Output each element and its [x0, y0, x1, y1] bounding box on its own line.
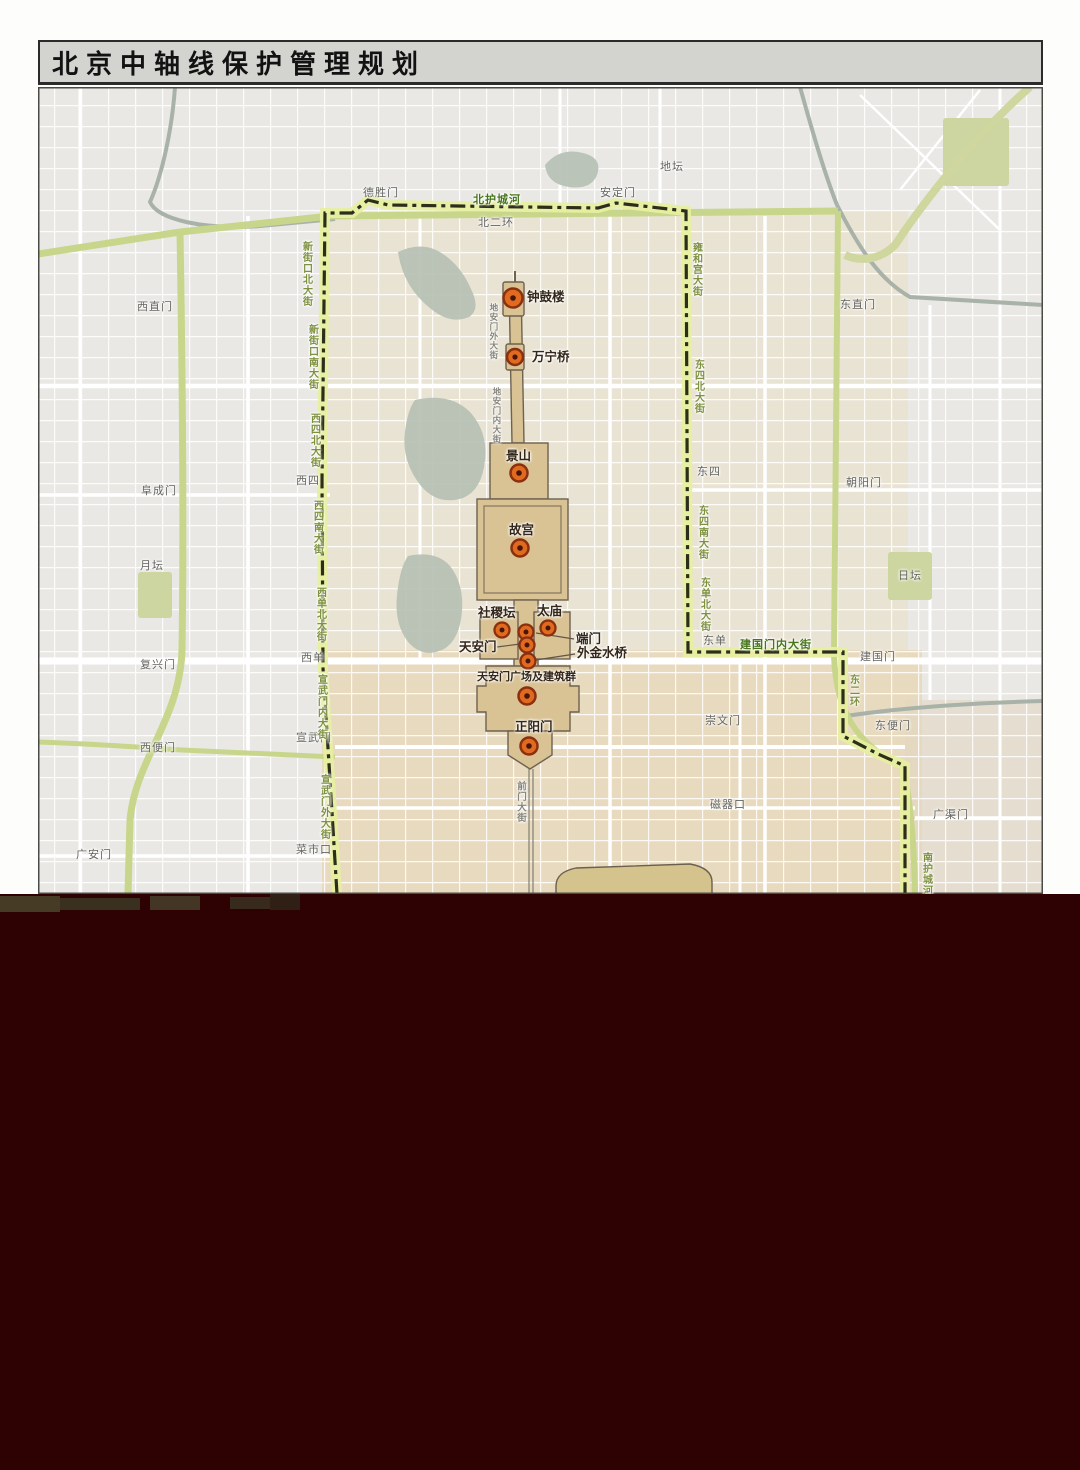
- site-label: 外金水桥: [577, 647, 627, 660]
- street-label: 西单北大街: [314, 587, 325, 642]
- site-label: 景山: [506, 450, 531, 463]
- street-label: 新街口南大街: [306, 324, 317, 390]
- street-label: 地安门内大街: [492, 387, 501, 444]
- street-label: 宣武门外大街: [318, 774, 329, 840]
- marker-tiananmen: [520, 638, 535, 653]
- gate-label: 广渠门: [933, 810, 969, 822]
- marker-zhonggulou: [504, 289, 523, 308]
- gate-label: 德胜门: [363, 188, 399, 200]
- site-label: 端门: [576, 633, 601, 646]
- gate-label: 广安门: [76, 850, 112, 862]
- compression-artifact: [0, 896, 60, 912]
- gate-label: 西四: [296, 476, 320, 488]
- gate-label: 地坛: [660, 162, 684, 174]
- gate-label: 西便门: [140, 743, 176, 755]
- street-label: 东四北大街: [692, 359, 703, 414]
- street-label: 东单北大街: [698, 577, 709, 632]
- map-layers: [38, 87, 1043, 894]
- gate-label: 朝阳门: [846, 478, 882, 490]
- site-label: 故宫: [509, 524, 534, 537]
- river-label: 北护城河: [473, 195, 521, 207]
- site-label: 太庙: [537, 605, 562, 618]
- gate-label: 安定门: [600, 188, 636, 200]
- site-label: 社稷坛: [478, 607, 516, 620]
- marker-zhengyangmen: [521, 738, 538, 755]
- site-label: 万宁桥: [532, 351, 570, 364]
- marker-wanningqiao: [507, 349, 523, 365]
- gate-label: 磁器口: [710, 800, 746, 812]
- street-label: 新街口北大街: [300, 241, 311, 307]
- street-label: 西四北大街: [308, 413, 319, 468]
- marker-waijinshuiqiao: [521, 654, 536, 669]
- street-label: 建国门内大街: [740, 640, 812, 652]
- page-title: 北京中轴线保护管理规划: [40, 44, 426, 81]
- gate-label: 菜市口: [296, 845, 332, 857]
- gate-label: 阜成门: [141, 486, 177, 498]
- compression-artifact: [230, 897, 270, 909]
- site-label: 天安门广场及建筑群: [477, 672, 576, 684]
- street-label: 雍和宫大街: [690, 242, 701, 297]
- ring-road-label: 北二环: [478, 218, 514, 230]
- ring-road-label: 东二环: [847, 674, 858, 707]
- compression-artifact: [270, 894, 300, 910]
- gate-label: 日坛: [898, 571, 922, 583]
- site-label: 正阳门: [515, 721, 553, 734]
- planning-document-page: { "title": "北京中轴线保护管理规划", "map": { "site…: [0, 0, 1080, 1470]
- park-yuetan: [138, 572, 172, 618]
- gate-label: 复兴门: [140, 660, 176, 672]
- marker-jingshan: [511, 465, 528, 482]
- marker-shejitan: [495, 623, 510, 638]
- gate-label: 崇文门: [705, 716, 741, 728]
- site-label: 钟鼓楼: [527, 291, 565, 304]
- compression-artifact: [150, 896, 200, 910]
- river-label: 南护城河: [920, 852, 931, 896]
- gate-label: 西单: [301, 653, 325, 665]
- gate-label: 西直门: [137, 302, 173, 314]
- page-title-band: 北京中轴线保护管理规划: [38, 40, 1043, 85]
- gate-label: 东直门: [840, 300, 876, 312]
- marker-square: [519, 688, 536, 705]
- gate-label: 东单: [703, 636, 727, 648]
- gate-label: 建国门: [860, 652, 896, 664]
- street-label: 地安门外大街: [489, 303, 498, 360]
- marker-taimiao: [541, 621, 556, 636]
- street-label: 前门大街: [515, 781, 525, 823]
- street-label: 宣武门内大街: [315, 674, 326, 740]
- gate-label: 东便门: [875, 721, 911, 733]
- street-label: 东四南大街: [696, 505, 707, 560]
- site-label: 天安门: [459, 641, 497, 654]
- street-label: 西四南大街: [311, 500, 322, 555]
- compression-artifact: [60, 898, 140, 910]
- block-tiantan: [556, 864, 712, 894]
- park-ditan: [943, 118, 1009, 186]
- gate-label: 月坛: [140, 561, 164, 573]
- marker-gugong: [512, 540, 529, 557]
- gate-label: 东四: [697, 467, 721, 479]
- dark-band: [0, 894, 1080, 1470]
